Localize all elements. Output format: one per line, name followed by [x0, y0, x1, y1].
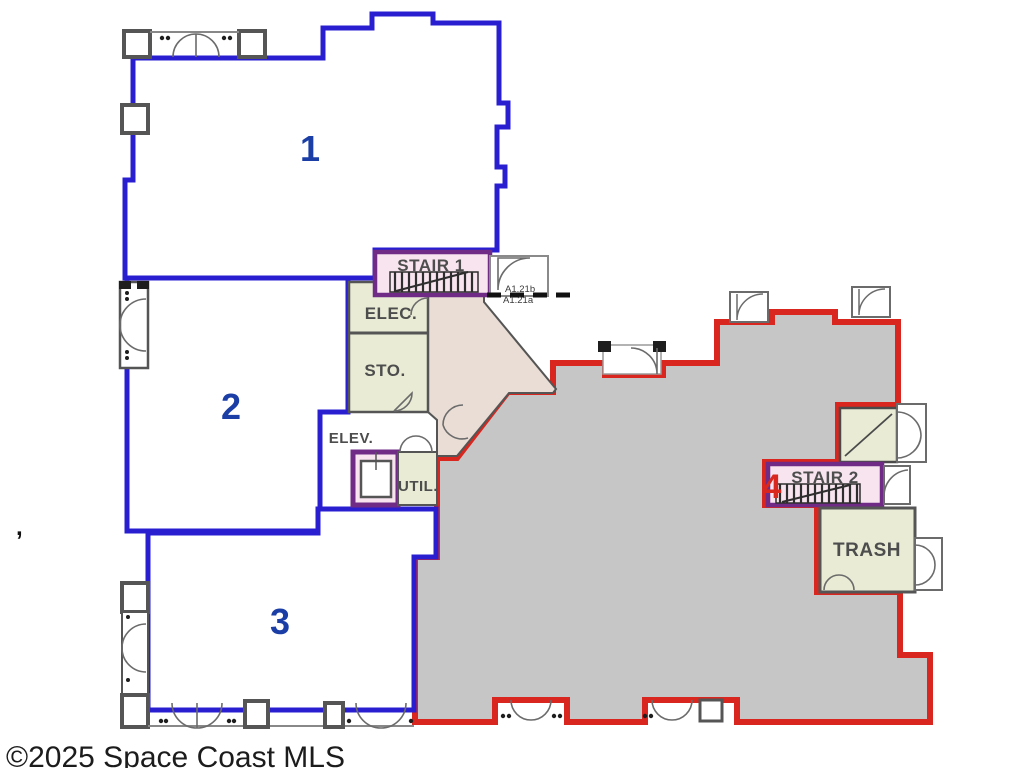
stray-mark: ,: [16, 514, 23, 541]
sto-label: STO.: [364, 361, 405, 380]
util-door-swing: [400, 436, 432, 452]
detail-ref-bottom-label: A1.21a: [503, 295, 534, 306]
unit-3-outline: [148, 509, 436, 710]
unit-4-bottom-entry-2: [643, 700, 722, 721]
unit-1-number: 1: [300, 128, 320, 169]
stair-1-label: STAIR 1: [397, 256, 464, 275]
stair-2-label: STAIR 2: [791, 468, 858, 487]
unit-3-left-wall: [122, 583, 148, 727]
unit-1-left-window: [122, 105, 148, 133]
unit-2-left-entry: [119, 281, 149, 368]
unit-4-top-entry-alcove: [598, 341, 666, 374]
unit-4-top-door-2: [852, 287, 890, 317]
floor-plan-page: A1.21b A1.21a STAIR 1 ELEC. STO. ELEV. U…: [0, 0, 1024, 768]
unit-2-number: 2: [221, 386, 241, 427]
elev-label: ELEV.: [329, 430, 373, 447]
stair-2-door-box: [884, 466, 910, 504]
util-label: UTIL.: [398, 478, 438, 495]
copyright-text: ©2025 Space Coast MLS: [6, 741, 345, 768]
floor-plan-drawing: A1.21b A1.21a STAIR 1 ELEC. STO. ELEV. U…: [0, 0, 1024, 768]
unit-4-number: 4: [763, 468, 782, 506]
detail-ref-top-label: A1.21b: [505, 284, 535, 295]
unit-3-number: 3: [270, 601, 290, 642]
trash-label: TRASH: [833, 540, 901, 561]
elec-label: ELEC.: [365, 304, 418, 323]
unit-1-storefront-top: [124, 31, 265, 57]
elec-sto-room: [349, 282, 428, 412]
unit-4-top-door-1: [730, 292, 768, 322]
